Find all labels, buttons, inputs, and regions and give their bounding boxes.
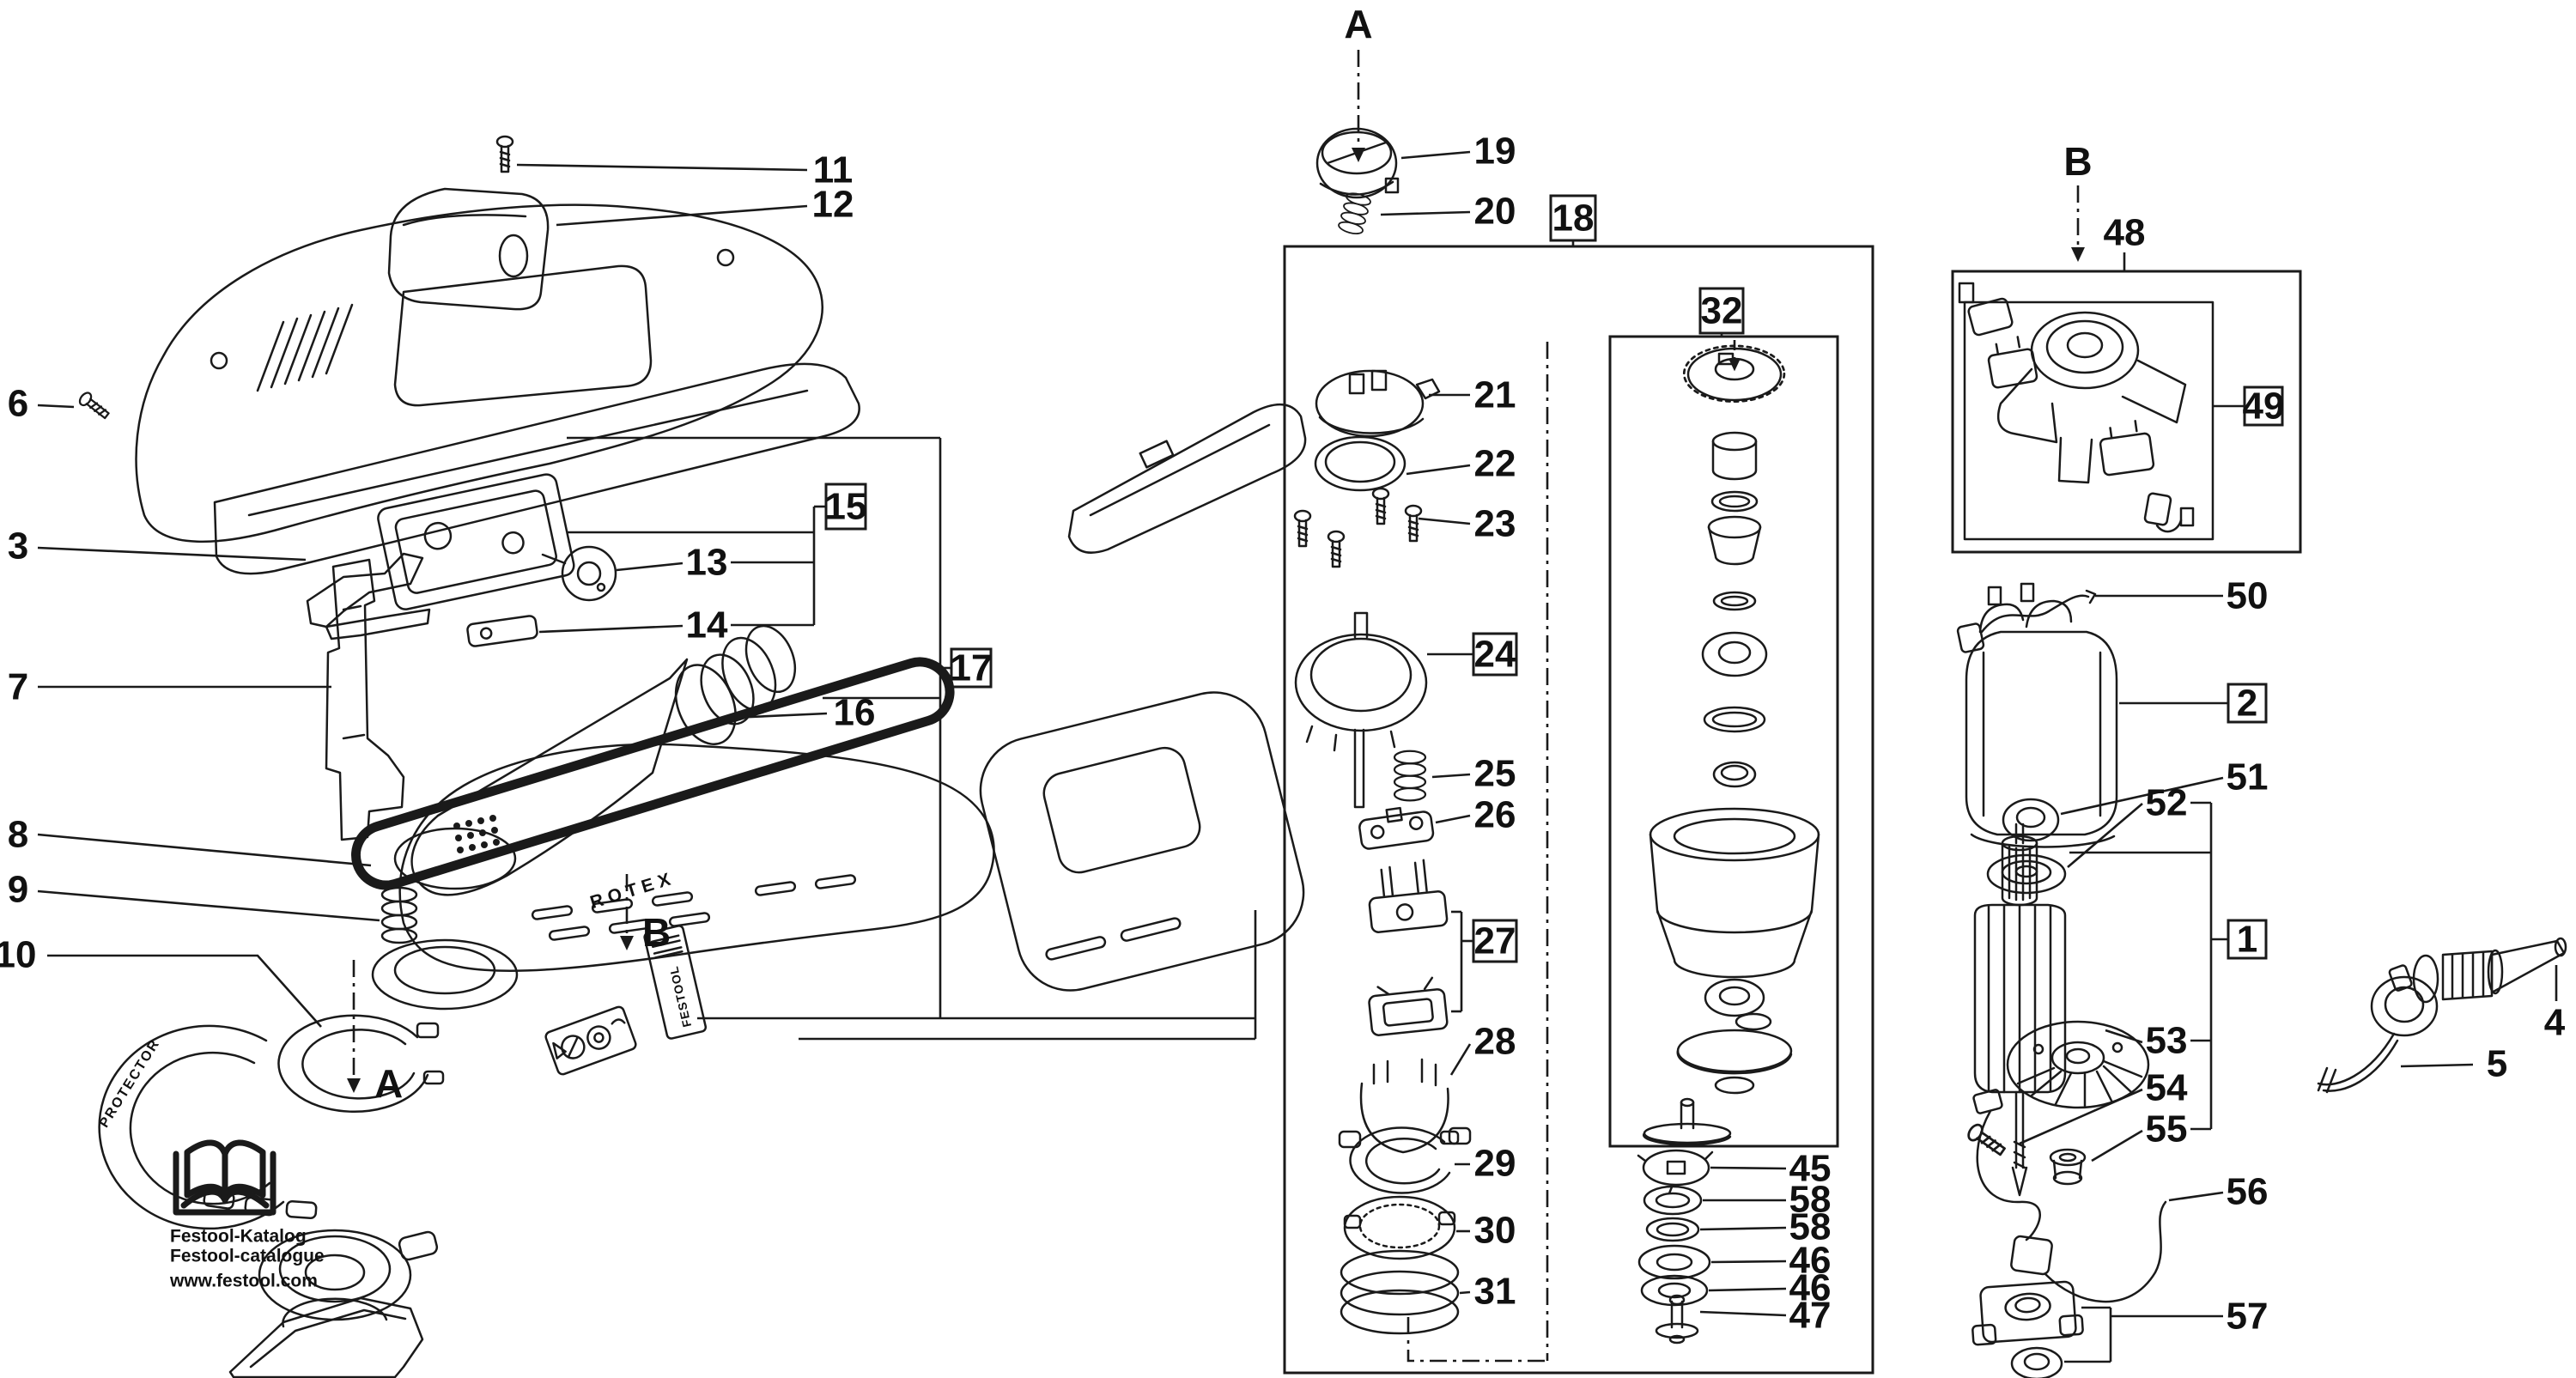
callout-13: 13 — [686, 542, 728, 584]
callout-15: 15 — [825, 486, 867, 528]
letter-b-top: B — [2063, 139, 2092, 184]
left-callouts: 11 12 6 3 7 8 9 10 13 14 15 16 — [0, 149, 1255, 1040]
part-30-gear-ring-drawing — [1345, 1197, 1455, 1259]
callout-52: 52 — [2146, 782, 2188, 824]
part-58b-washer-drawing — [1647, 1218, 1698, 1241]
callout-26: 26 — [1474, 794, 1516, 836]
gear-stack-drawing — [1643, 346, 1819, 1144]
icon-sticker-drawing — [544, 1005, 637, 1076]
callout-20: 20 — [1474, 191, 1516, 233]
callout-2: 2 — [2237, 683, 2257, 725]
left-assembly: ROTEX PROTECTOR — [0, 137, 1315, 1377]
callout-29: 29 — [1474, 1143, 1516, 1185]
part-4-connector-drawing — [2414, 938, 2566, 1002]
logo-line-catalogue: Festool-catalogue — [170, 1247, 325, 1266]
part-46a-washer-drawing — [1639, 1246, 1710, 1278]
logo-line-website: www.festool.com — [169, 1272, 318, 1291]
festool-sticker-text: FESTOOL — [666, 964, 694, 1029]
callout-49: 49 — [2243, 385, 2285, 428]
bearing-bracket-drawing — [1959, 283, 2193, 531]
upper-housing-drawing — [137, 205, 823, 542]
middle-assembly: A 19 20 18 32 21 22 — [1285, 2, 1873, 1373]
callout-10: 10 — [0, 934, 36, 976]
part-5-cable-drawing — [2318, 964, 2437, 1092]
callout-50: 50 — [2227, 575, 2269, 617]
callout-8: 8 — [8, 814, 28, 856]
part-27b-drawing — [1367, 977, 1448, 1036]
rotex-text: ROTEX — [588, 868, 678, 913]
part-27a-drawing — [1365, 859, 1448, 933]
callout-18: 18 — [1552, 197, 1595, 240]
part-14-strip-drawing — [467, 616, 538, 647]
part-29-ring-drawing — [1351, 1128, 1458, 1193]
part-57-bracket-drawing — [1970, 1281, 2083, 1378]
callout-7: 7 — [8, 666, 28, 708]
protector-ring-drawing: PROTECTOR — [97, 1026, 317, 1229]
callout-47: 47 — [1789, 1295, 1832, 1337]
right-assembly: B 48 49 50 — [1953, 139, 2566, 1378]
parts-diagram-canvas: ROTEX PROTECTOR — [0, 0, 2576, 1378]
protector-text: PROTECTOR — [97, 1036, 163, 1130]
logo-line-katalog: Festool-Katalog — [170, 1227, 307, 1247]
part-54-screw-drawing — [1965, 1122, 2007, 1158]
part-11-screw-drawing — [497, 137, 513, 172]
part-31-rings-drawing — [1341, 1251, 1458, 1333]
callout-25: 25 — [1474, 753, 1516, 795]
callout-30: 30 — [1474, 1210, 1516, 1252]
part-22-ring-drawing — [1315, 437, 1405, 490]
callout-22: 22 — [1474, 443, 1516, 485]
callout-56: 56 — [2227, 1171, 2269, 1213]
part-52-bearing-drawing — [1988, 855, 2065, 893]
part-10-ring-drawing — [278, 1016, 443, 1112]
part-13-dial-drawing — [543, 547, 616, 600]
section-a-marker-top: A — [1344, 2, 1372, 162]
part-58a-washer-drawing — [1644, 1187, 1701, 1214]
letter-a-left: A — [374, 1061, 403, 1106]
rear-shell-drawing — [969, 681, 1315, 1001]
callout-54: 54 — [2146, 1067, 2188, 1109]
part-55-bushing-drawing — [2050, 1150, 2085, 1184]
delta-pad-drawing — [230, 1298, 422, 1377]
part-3-lever-drawing — [307, 554, 429, 639]
callout-27: 27 — [1474, 920, 1516, 962]
part-53-fan-drawing — [2008, 1022, 2148, 1108]
callout-48: 48 — [2104, 212, 2146, 254]
section-b-marker-top: B — [2063, 139, 2092, 262]
letter-b-left: B — [642, 910, 671, 955]
callout-14: 14 — [686, 604, 728, 647]
motor-housing-drawing: ROTEX — [373, 744, 993, 1009]
part-26-clamp-drawing — [1358, 804, 1434, 849]
callout-55: 55 — [2146, 1108, 2188, 1150]
callout-12: 12 — [812, 184, 854, 226]
callout-21: 21 — [1474, 374, 1516, 416]
part-6-screw-drawing — [77, 391, 111, 421]
part-21-cover-drawing — [1316, 371, 1439, 436]
letter-a-top: A — [1344, 2, 1372, 46]
part-24-gear-head-drawing — [1296, 613, 1426, 807]
callout-53: 53 — [2146, 1020, 2188, 1062]
callout-19: 19 — [1474, 131, 1516, 173]
exploded-parts-diagram-page: ROTEX PROTECTOR — [0, 0, 2576, 1378]
callout-57: 57 — [2227, 1296, 2269, 1338]
callout-1: 1 — [2237, 919, 2257, 961]
assembly-18-box — [1285, 246, 1873, 1373]
part-7-bracket-drawing — [326, 560, 404, 840]
callout-32: 32 — [1701, 290, 1743, 332]
callout-51: 51 — [2227, 756, 2269, 798]
callout-23: 23 — [1474, 503, 1516, 545]
assembly-32-box — [1610, 337, 1838, 1146]
callout-24: 24 — [1474, 634, 1516, 676]
callout-6: 6 — [8, 383, 28, 425]
callout-17: 17 — [951, 647, 993, 689]
subplate-drawing — [376, 472, 575, 610]
part-23-screws-drawing — [1295, 489, 1421, 567]
callout-5: 5 — [2487, 1043, 2507, 1085]
callout-3: 3 — [8, 525, 28, 568]
part-46b-washer-drawing — [1642, 1276, 1707, 1305]
part-25-spring-drawing — [1394, 751, 1425, 801]
callout-9: 9 — [8, 869, 28, 911]
callout-4: 4 — [2544, 1002, 2566, 1044]
carriage-frame-drawing — [1069, 404, 1305, 553]
callout-31: 31 — [1474, 1271, 1516, 1313]
callout-28: 28 — [1474, 1021, 1516, 1063]
